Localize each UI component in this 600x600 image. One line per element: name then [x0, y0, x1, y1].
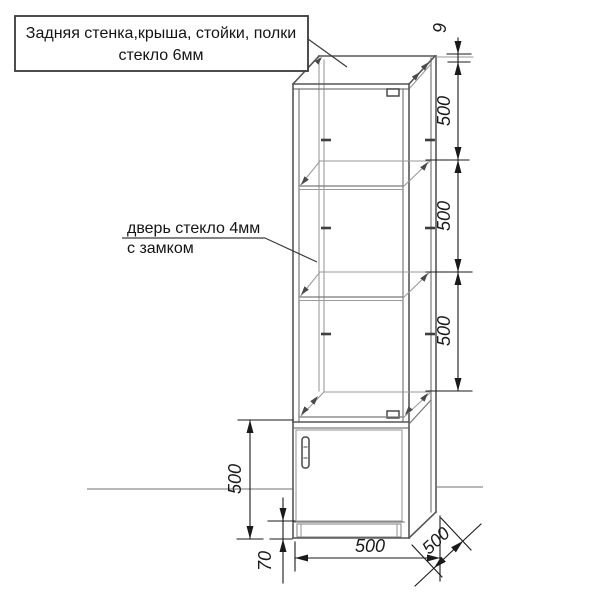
callout-door-glass: дверь стекло 4мм с замком	[122, 220, 317, 262]
dimension-plinth-height: 70	[255, 498, 295, 583]
base-section	[293, 400, 436, 538]
callout-top-line1: Задняя стенка,крыша, стойки, полки	[26, 25, 296, 42]
dimension-depth: 500	[412, 518, 481, 586]
plinth	[297, 524, 401, 537]
dim-base-height: 500	[225, 464, 245, 494]
callout-door-line2: с замком	[127, 240, 194, 257]
shelf-pins	[321, 140, 435, 334]
dim-plinth-height: 70	[255, 551, 275, 571]
door-lock-top	[387, 89, 399, 96]
dim-top-profile: 9	[430, 23, 450, 33]
display-section	[293, 56, 436, 538]
dimension-right-chain: 9 500 500 500	[426, 23, 473, 391]
dim-depth: 500	[418, 523, 454, 558]
dim-width: 500	[355, 536, 385, 556]
roof-panel	[293, 56, 436, 89]
cabinet-drawing: 9 500 500 500 500 70 500 500	[0, 0, 600, 600]
dim-section-2: 500	[434, 201, 454, 231]
display-bottom	[299, 392, 431, 418]
floor-line	[87, 487, 483, 489]
dim-section-3: 500	[434, 316, 454, 346]
drawing-canvas: 9 500 500 500 500 70 500 500	[0, 0, 600, 600]
callout-top-glass: Задняя стенка,крыша, стойки, полки стекл…	[15, 16, 347, 71]
callout-door-line1: дверь стекло 4мм	[127, 220, 260, 237]
door-handle	[302, 437, 309, 468]
callout-top-line2: стекло 6мм	[119, 47, 204, 64]
base-door	[296, 430, 402, 521]
dim-section-1: 500	[434, 96, 454, 126]
